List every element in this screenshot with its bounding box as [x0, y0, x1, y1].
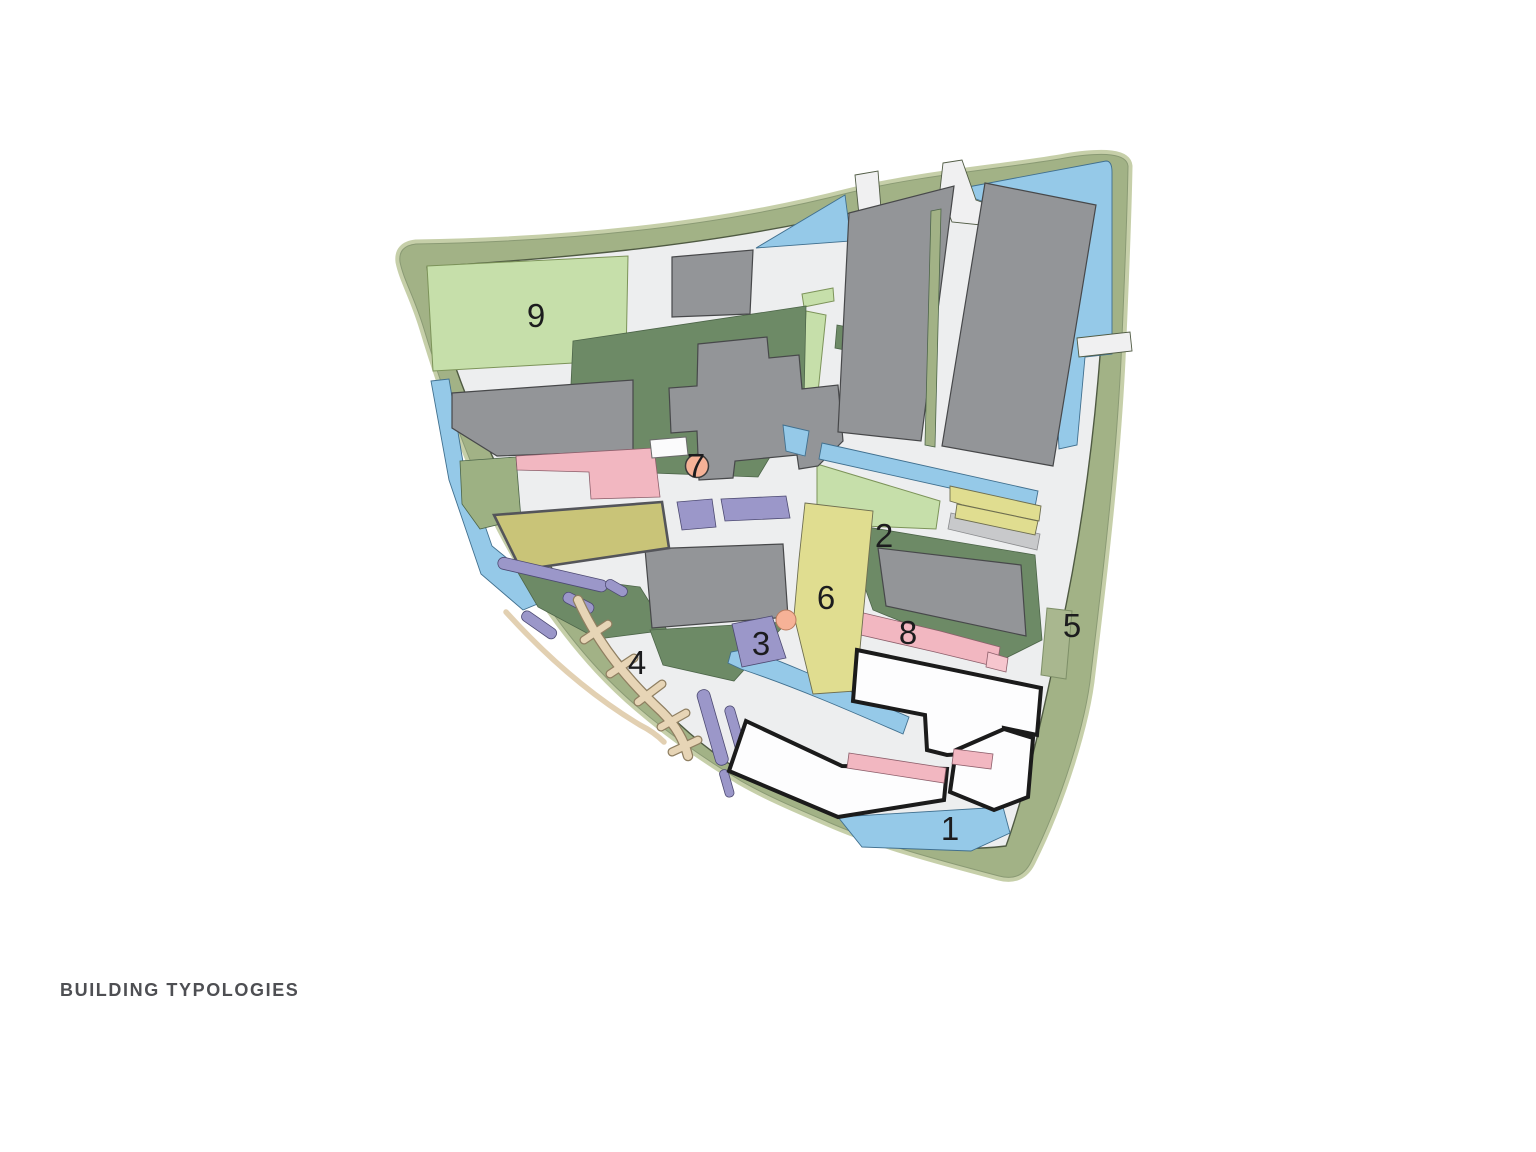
zone-label-1: 1	[941, 810, 959, 847]
water-pocket-center	[783, 425, 809, 456]
zone-label-9: 9	[527, 297, 545, 334]
slide-canvas: 1 2 3 4 5 6 7 8 9 BUILDING TYPOLOGIES	[0, 0, 1536, 1152]
white-parcel-small	[650, 437, 688, 458]
zone-label-7: 7	[687, 447, 705, 484]
zone-label-6: 6	[817, 579, 835, 616]
zone-label-3: 3	[752, 625, 770, 662]
purple-parcel-a	[677, 499, 716, 530]
zone-label-4: 4	[628, 644, 646, 681]
gray-building-center-slab	[645, 544, 788, 628]
zone-label-2: 2	[875, 517, 893, 554]
zone-label-8: 8	[899, 614, 917, 651]
zone-label-5: 5	[1063, 607, 1081, 644]
page-title: BUILDING TYPOLOGIES	[60, 980, 299, 1001]
gray-building-west	[452, 380, 633, 456]
marker-dot-plaza	[776, 610, 796, 630]
gray-building-north-center	[672, 250, 753, 317]
purple-parcel-b	[721, 496, 790, 521]
